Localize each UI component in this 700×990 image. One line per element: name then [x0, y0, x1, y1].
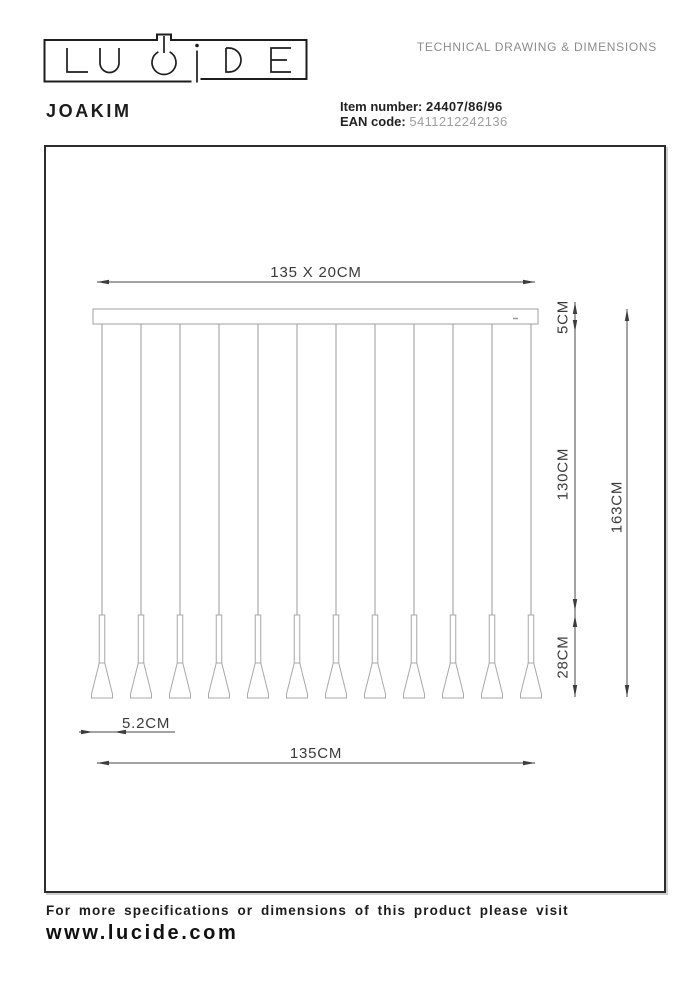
- pendant-cone-shade: [443, 663, 464, 698]
- pendant: [170, 324, 191, 698]
- ceiling-bar: [93, 309, 538, 324]
- pendant-tube: [255, 615, 261, 663]
- pendant: [248, 324, 269, 698]
- pendant-cone-shade: [482, 663, 503, 698]
- pendant-cone-shade: [365, 663, 386, 698]
- item-number-row: Item number: 24407/86/96: [340, 99, 508, 114]
- item-info-block: Item number: 24407/86/96 EAN code: 54112…: [340, 99, 508, 129]
- dimension-label-cord-length: 130CM: [554, 448, 571, 500]
- pendant-lamp-drawing: 135 X 20CM 5CM 130CM 28CM 163CM 5.2CM: [46, 147, 664, 891]
- technical-drawing-frame: 135 X 20CM 5CM 130CM 28CM 163CM 5.2CM: [44, 145, 666, 893]
- pendant-tube: [99, 615, 105, 663]
- pendant-cone-shade: [170, 663, 191, 698]
- pendant: [404, 324, 425, 698]
- dimension-label-total-height: 163CM: [608, 481, 625, 533]
- dimension-shade-diameter: 5.2CM: [79, 715, 175, 734]
- pendant-tube: [411, 615, 417, 663]
- footer-text: For more specifications or dimensions of…: [46, 903, 656, 918]
- dimension-label-bar-width: 135 X 20CM: [270, 264, 361, 281]
- pendant-tube: [138, 615, 144, 663]
- item-number-label: Item number:: [340, 99, 422, 114]
- pendant-tube: [177, 615, 183, 663]
- logo-letter-C: [152, 52, 176, 75]
- dimension-overall-width: 135CM: [97, 745, 535, 765]
- pendant: [209, 324, 230, 698]
- pendant-cone-shade: [404, 663, 425, 698]
- ean-row: EAN code: 5411212242136: [340, 114, 508, 129]
- pendant: [521, 324, 542, 698]
- document-title: TECHNICAL DRAWING & DIMENSIONS: [0, 40, 657, 54]
- pendants-group: [92, 324, 542, 698]
- pendant-cone-shade: [287, 663, 308, 698]
- pendant: [131, 324, 152, 698]
- pendant: [482, 324, 503, 698]
- product-name: JOAKIM: [46, 101, 132, 122]
- pendant: [92, 324, 113, 698]
- ean-label: EAN code:: [340, 114, 406, 129]
- pendant-tube: [294, 615, 300, 663]
- pendant-cone-shade: [131, 663, 152, 698]
- item-number-value: 24407/86/96: [426, 99, 503, 114]
- pendant-tube: [333, 615, 339, 663]
- footer: For more specifications or dimensions of…: [46, 903, 656, 945]
- pendant: [443, 324, 464, 698]
- pendant-cone-shade: [326, 663, 347, 698]
- dimension-label-bar-height: 5CM: [554, 300, 571, 334]
- dimension-chain-right: 5CM 130CM 28CM: [554, 300, 577, 697]
- pendant-cone-shade: [521, 663, 542, 698]
- pendant: [365, 324, 386, 698]
- pendant-tube: [528, 615, 534, 663]
- pendant: [326, 324, 347, 698]
- dimension-label-shade-diameter: 5.2CM: [122, 715, 170, 732]
- pendant: [287, 324, 308, 698]
- dimension-label-overall-width: 135CM: [290, 745, 342, 762]
- pendant-tube: [216, 615, 222, 663]
- dimension-bar-width: 135 X 20CM: [97, 264, 535, 284]
- dimension-total-height: 163CM: [608, 309, 629, 697]
- dimension-label-shade-height: 28CM: [554, 635, 571, 678]
- pendant-tube: [450, 615, 456, 663]
- pendant-tube: [372, 615, 378, 663]
- ean-value: 5411212242136: [409, 114, 507, 129]
- pendant-cone-shade: [248, 663, 269, 698]
- pendant-cone-shade: [92, 663, 113, 698]
- pendant-tube: [489, 615, 495, 663]
- pendant-cone-shade: [209, 663, 230, 698]
- footer-website-link[interactable]: www.lucide.com: [46, 922, 656, 945]
